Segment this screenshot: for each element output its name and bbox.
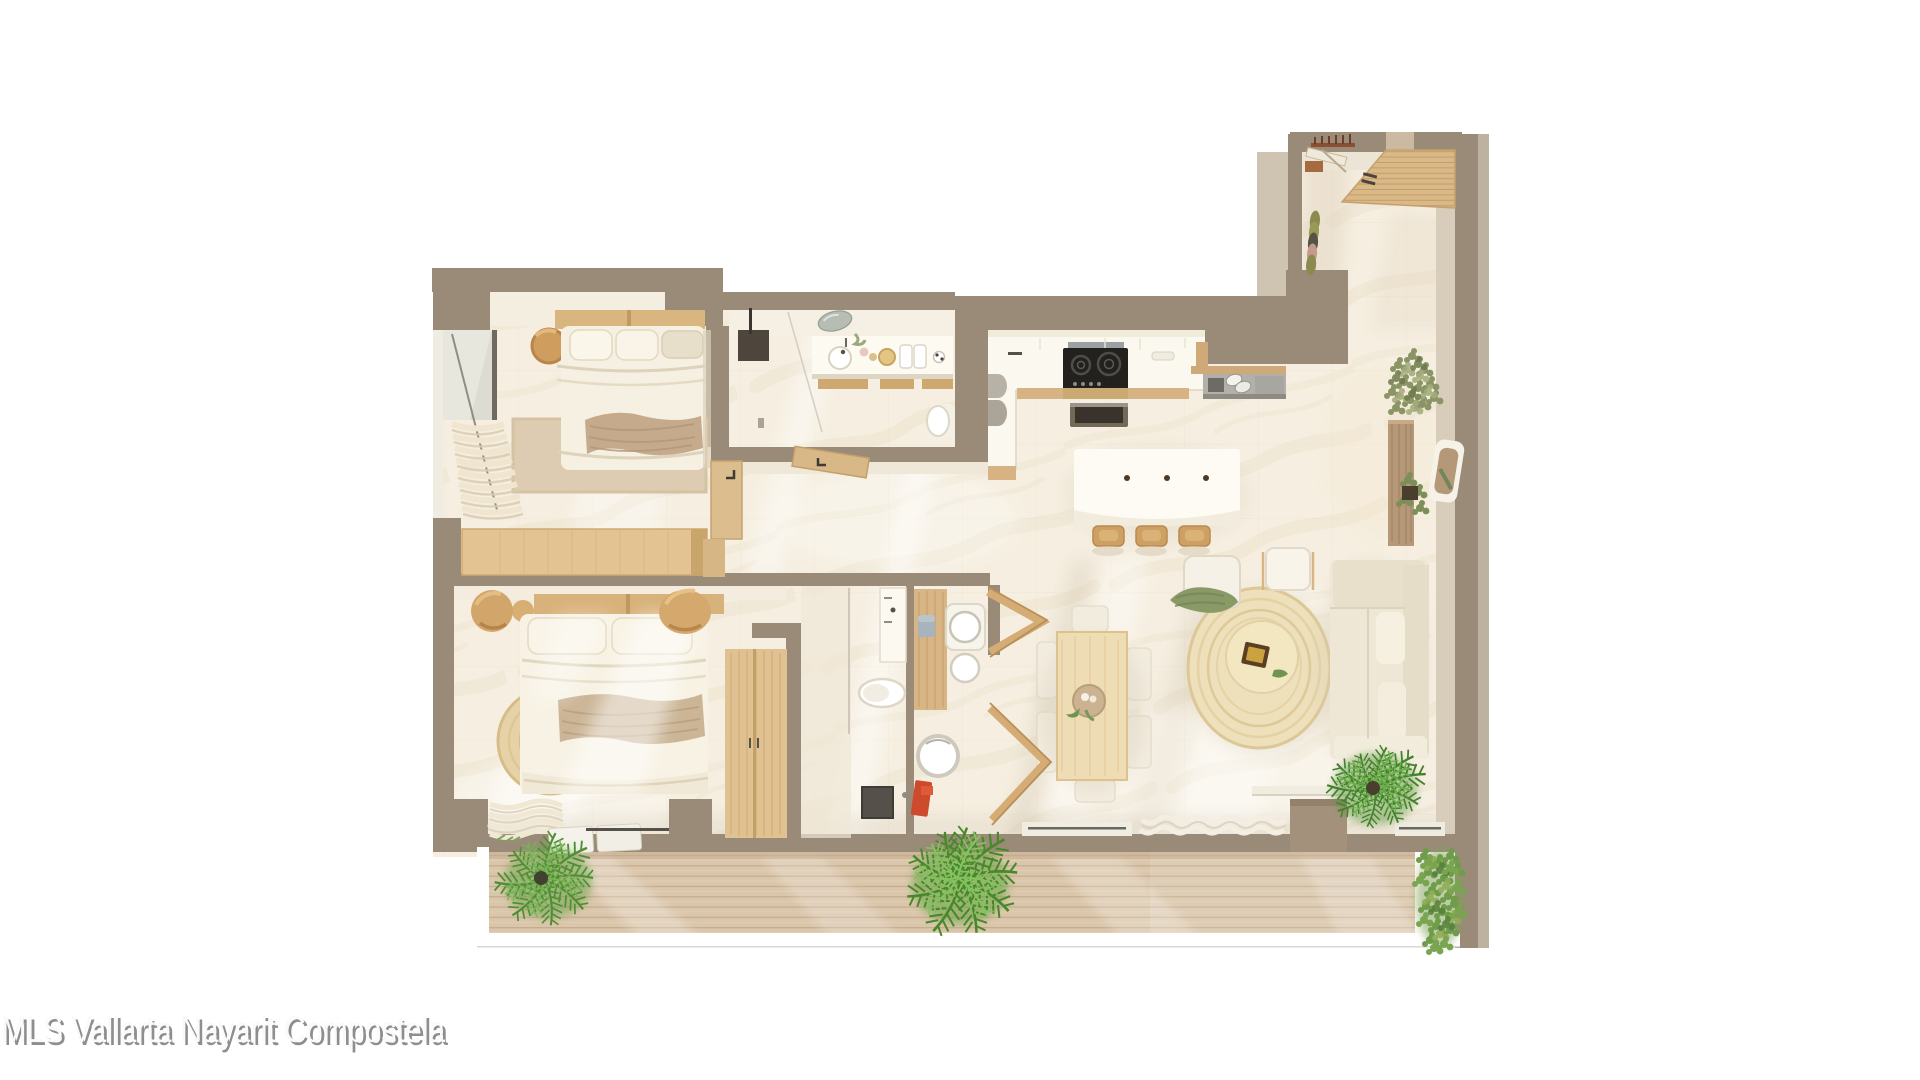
svg-text:MLS Vallarta Nayarit Compostel: MLS Vallarta Nayarit Compostela: [1, 1009, 445, 1050]
